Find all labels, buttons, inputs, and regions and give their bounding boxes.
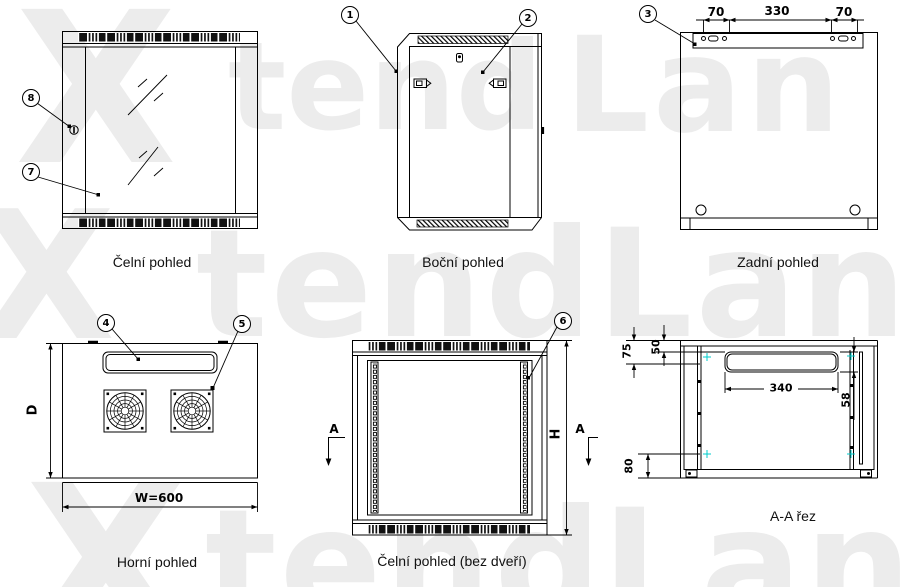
fan-grille-icon (104, 390, 146, 432)
dim-sec-58: 58 (840, 392, 853, 407)
door-lock-icon (70, 126, 78, 134)
callout-8: 8 (22, 89, 40, 107)
front-open-view-label: Čelní pohled (bez dveří) (377, 553, 526, 569)
section-letter-left: A (329, 422, 338, 436)
rear-view-label: Zadní pohled (737, 254, 819, 270)
rack-rail-right (521, 362, 528, 513)
top-view (46, 342, 258, 512)
dim-rear-70-left: 70 (708, 5, 725, 19)
fan-grille-icon (171, 390, 213, 432)
callout-4: 4 (97, 314, 115, 332)
dim-width-600: W=600 (135, 491, 183, 505)
vent-strip (78, 219, 240, 228)
datasheet-drawing: X tend Lan X tend Lan X tend Lan (0, 0, 902, 587)
dim-depth-D: D (26, 405, 41, 416)
callout-2: 2 (519, 9, 537, 27)
vent-strip (78, 33, 240, 42)
cable-hole (850, 205, 860, 215)
callout-5: 5 (233, 315, 251, 333)
rear-dimension-lines (696, 18, 864, 34)
glass-reflection (128, 75, 167, 185)
latch-right-icon (489, 79, 506, 88)
cable-slot-section (725, 352, 838, 372)
dim-sec-80: 80 (623, 458, 636, 473)
dim-height-H: H (549, 429, 564, 440)
cable-slot (103, 352, 217, 373)
dim-rear-70-right: 70 (836, 5, 853, 19)
callout-3: 3 (639, 5, 657, 23)
vent-hatch (417, 220, 508, 227)
section-view-label: A-A řez (770, 508, 816, 524)
cable-hole (696, 205, 706, 215)
top-dimension-lines (46, 344, 258, 513)
callout-7: 7 (22, 163, 40, 181)
rear-view (681, 18, 878, 230)
top-view-label: Horní pohled (117, 554, 197, 570)
front-view (63, 32, 258, 229)
latch-left-icon (414, 79, 431, 88)
mounting-bracket (693, 34, 863, 49)
front-view-label: Čelní pohled (113, 254, 192, 270)
section-letter-right: A (575, 422, 584, 436)
side-view-label: Boční pohled (422, 254, 504, 270)
dim-sec-340: 340 (770, 382, 793, 395)
vent-hatch (418, 36, 508, 44)
rack-rail-left (371, 362, 378, 513)
keyhole-icon (457, 54, 463, 63)
rail-section-left (698, 346, 702, 470)
callout-1: 1 (341, 6, 359, 24)
dim-rear-330: 330 (764, 4, 789, 18)
dim-sec-75: 75 (621, 343, 634, 358)
callout-6: 6 (554, 312, 572, 330)
section-cut-markers (326, 438, 598, 467)
side-view (398, 34, 544, 231)
callout-leaders (37, 20, 697, 390)
vent-strip (368, 342, 530, 351)
vent-strip (368, 525, 530, 534)
dim-sec-50: 50 (650, 339, 663, 354)
